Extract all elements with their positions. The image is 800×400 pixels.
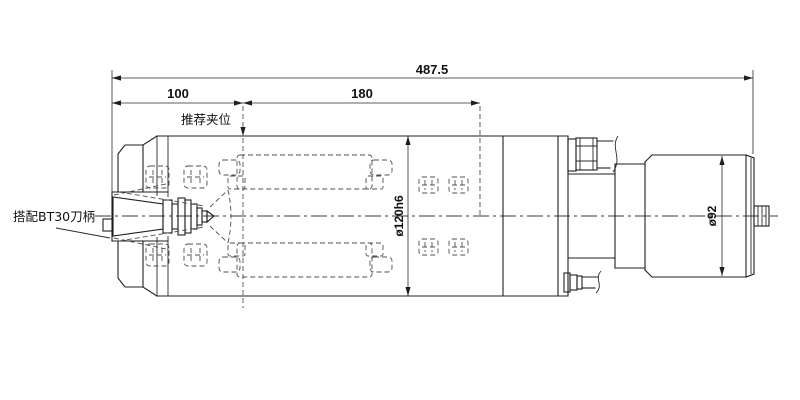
front-section-label: 100 <box>167 86 189 101</box>
dimension-body-diameter: ø120h6 <box>392 136 411 296</box>
rear-diameter-label: ø92 <box>705 205 719 226</box>
drawing-svg: 487.5 100 180 推荐夹位 ø120h6 ø92 搭配BT30刀柄 <box>0 0 800 400</box>
mid-section-label: 180 <box>351 86 373 101</box>
cable-gland-bottom <box>564 271 601 293</box>
tool-holder-label: 搭配BT30刀柄 <box>13 209 95 224</box>
dimension-front-sections: 100 180 推荐夹位 <box>112 86 480 308</box>
overall-length-label: 487.5 <box>416 62 449 77</box>
cable-break-symbol <box>613 136 618 172</box>
body-diameter-label: ø120h6 <box>392 195 406 237</box>
dimension-rear-diameter: ø92 <box>705 156 725 276</box>
nose-cap-top <box>118 136 157 192</box>
clip <box>419 177 438 193</box>
clip <box>449 239 468 255</box>
dimension-overall-length: 487.5 <box>112 62 753 192</box>
tool-holder-callout: 搭配BT30刀柄 <box>13 209 110 238</box>
clip <box>449 177 468 193</box>
tool-holder-leader <box>56 228 110 238</box>
gland-bracket <box>568 139 576 171</box>
clip <box>419 239 438 255</box>
tool-holder-taper <box>113 197 163 236</box>
gripper-tip <box>207 211 214 222</box>
bt30-tool-holder <box>103 190 231 243</box>
clamp-area-label: 推荐夹位 <box>181 112 231 127</box>
cable-gland-top <box>568 136 618 172</box>
clamp-position-arrow <box>240 127 245 136</box>
cable-break-symbol <box>596 271 601 293</box>
rear-assembly <box>564 136 769 293</box>
clip <box>184 244 207 266</box>
clip <box>184 166 207 188</box>
pull-stud <box>178 198 185 235</box>
nose-cap-bottom <box>118 241 157 296</box>
clip <box>146 166 169 188</box>
spindle-engineering-drawing: 487.5 100 180 推荐夹位 ø120h6 ø92 搭配BT30刀柄 <box>0 0 800 400</box>
